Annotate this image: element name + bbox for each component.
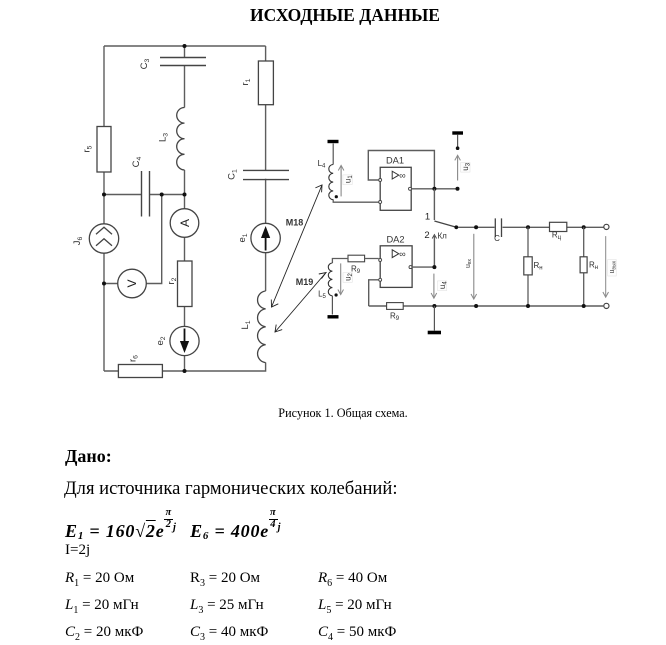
svg-text:r1: r1 [240,78,252,85]
svg-text:e2: e2 [155,336,167,345]
svg-text:A: A [178,219,192,227]
svg-text:J6: J6 [72,237,84,246]
svg-text:C: C [494,234,500,243]
svg-text:uвх: uвх [465,258,473,268]
svg-text:r5: r5 [82,145,94,152]
svg-text:uвых: uвых [609,260,617,273]
svg-text:1: 1 [425,212,430,223]
svg-text:C3: C3 [139,58,151,69]
svg-text:e1: e1 [237,233,249,242]
svg-text:L4: L4 [318,159,326,170]
svg-text:Rн: Rн [534,261,543,272]
svg-text:R9: R9 [390,312,400,323]
svg-text:M19: M19 [296,277,314,287]
svg-text:∞: ∞ [399,170,405,180]
svg-text:Rн: Rн [589,261,598,272]
svg-text:r6: r6 [128,355,140,362]
svg-text:V: V [125,279,139,287]
svg-text:L5: L5 [318,290,326,301]
svg-text:C1: C1 [227,169,239,180]
svg-text:r2: r2 [166,277,178,284]
svg-text:C4: C4 [131,156,143,167]
svg-text:2: 2 [424,230,429,241]
svg-text:L3: L3 [158,133,170,142]
svg-text:L1: L1 [240,320,252,329]
svg-text:Кл: Кл [438,232,448,241]
svg-text:DA1: DA1 [386,156,404,166]
svg-text:M18: M18 [286,218,304,228]
svg-text:DA2: DA2 [386,235,404,245]
svg-text:∞: ∞ [399,249,405,259]
